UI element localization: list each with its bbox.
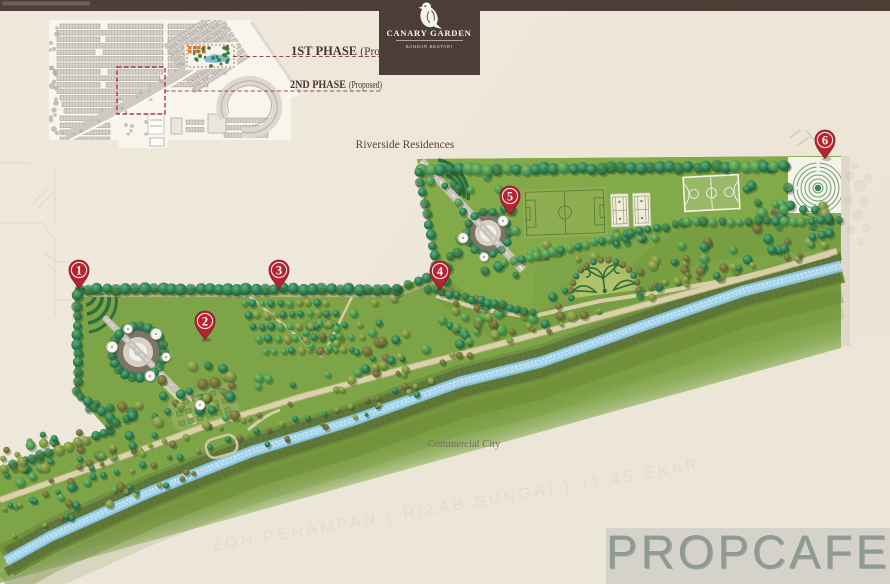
svg-text:3: 3 xyxy=(276,263,282,277)
svg-text:Commercial City: Commercial City xyxy=(428,439,501,450)
svg-text:CANARY GARDEN: CANARY GARDEN xyxy=(386,28,471,38)
svg-text:2: 2 xyxy=(202,314,208,328)
svg-text:Riverside Residences: Riverside Residences xyxy=(356,139,455,151)
svg-text:6: 6 xyxy=(822,133,828,147)
svg-text:PROPCAFE: PROPCAFE xyxy=(606,525,890,578)
svg-text:4: 4 xyxy=(437,264,444,278)
svg-text:2ND PHASE: 2ND PHASE xyxy=(290,79,346,91)
svg-text:5: 5 xyxy=(507,189,513,203)
svg-text:(Proposed): (Proposed) xyxy=(349,80,382,91)
svg-text:BANDAR BESTARI: BANDAR BESTARI xyxy=(406,44,453,49)
svg-text:1: 1 xyxy=(76,263,82,277)
